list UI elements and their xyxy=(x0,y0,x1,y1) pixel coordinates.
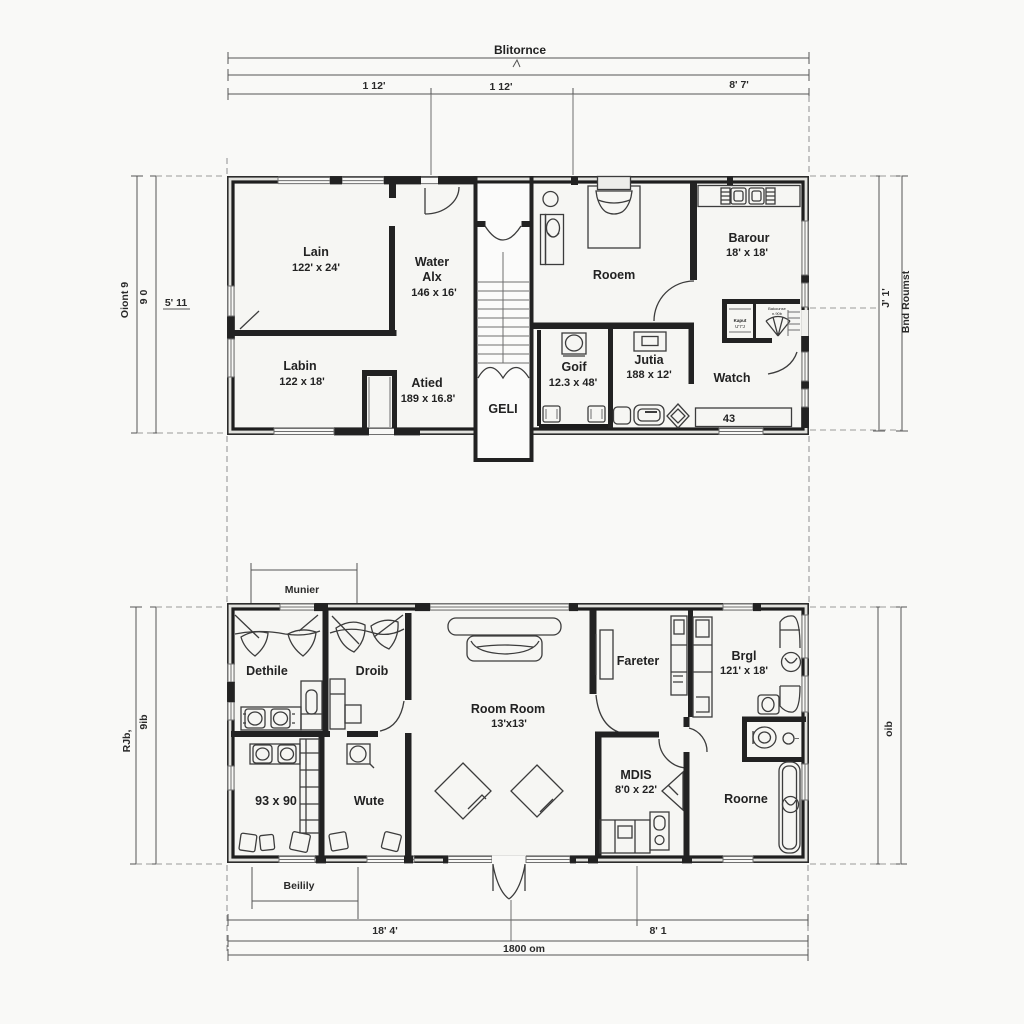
svg-text:Bnd Roumst: Bnd Roumst xyxy=(900,270,912,333)
svg-text:18' 4': 18' 4' xyxy=(372,925,397,937)
svg-text:Kaput: Kaput xyxy=(734,318,747,323)
svg-text:Dethile: Dethile xyxy=(246,664,288,678)
svg-text:121' x 18': 121' x 18' xyxy=(720,665,768,677)
svg-text:Oiont 9: Oiont 9 xyxy=(119,282,131,318)
svg-text:122 x 18': 122 x 18' xyxy=(279,376,325,388)
svg-text:18' x 18': 18' x 18' xyxy=(726,247,768,259)
svg-text:8' 1: 8' 1 xyxy=(649,925,666,937)
svg-text:Room Room: Room Room xyxy=(471,702,545,716)
svg-text:MDIS: MDIS xyxy=(620,768,651,782)
svg-text:oib: oib xyxy=(883,721,895,737)
svg-text:Wute: Wute xyxy=(354,794,384,808)
svg-text:Labin: Labin xyxy=(283,359,316,373)
svg-text:12.3 x 48': 12.3 x 48' xyxy=(549,377,598,389)
svg-text:Blitornce: Blitornce xyxy=(494,43,546,57)
svg-text:5' 11: 5' 11 xyxy=(165,297,188,309)
svg-text:146 x 16': 146 x 16' xyxy=(411,287,457,299)
svg-text:Beilily: Beilily xyxy=(284,880,315,892)
svg-text:1 12': 1 12' xyxy=(490,81,513,93)
svg-text:1 12': 1 12' xyxy=(363,80,386,92)
svg-text:RJb,: RJb, xyxy=(121,730,133,753)
svg-text:Roorne: Roorne xyxy=(724,792,768,806)
svg-text:9 0: 9 0 xyxy=(138,290,150,305)
svg-text:Lain: Lain xyxy=(303,245,329,259)
svg-text:Barour: Barour xyxy=(729,231,770,245)
svg-text:Fareter: Fareter xyxy=(617,654,660,668)
svg-text:43: 43 xyxy=(723,413,735,425)
svg-text:GELI: GELI xyxy=(488,402,517,416)
svg-text:9ib: 9ib xyxy=(138,714,150,729)
svg-text:189 x 16.8': 189 x 16.8' xyxy=(401,393,456,405)
svg-text:93 x 90: 93 x 90 xyxy=(255,794,297,808)
svg-text:Water: Water xyxy=(415,255,449,269)
svg-text:Atied: Atied xyxy=(411,376,442,390)
svg-text:Droib: Droib xyxy=(356,664,389,678)
svg-text:Rooem: Rooem xyxy=(593,268,635,282)
svg-text:Alx: Alx xyxy=(422,270,442,284)
svg-text:188 x 12': 188 x 12' xyxy=(626,369,672,381)
svg-text:U'7'J: U'7'J xyxy=(735,324,745,329)
svg-text:Watch: Watch xyxy=(713,371,750,385)
svg-text:n.90b: n.90b xyxy=(772,311,783,316)
svg-text:J' 1': J' 1' xyxy=(880,288,892,308)
svg-text:122' x 24': 122' x 24' xyxy=(292,262,340,274)
svg-text:Brgl: Brgl xyxy=(732,649,757,663)
svg-text:13'x13': 13'x13' xyxy=(491,718,527,730)
svg-text:Munier: Munier xyxy=(285,584,319,596)
svg-text:1800 om: 1800 om xyxy=(503,943,545,955)
svg-text:8' 7': 8' 7' xyxy=(729,79,749,91)
svg-text:Goif: Goif xyxy=(562,360,588,374)
svg-text:8'0 x 22': 8'0 x 22' xyxy=(615,784,657,796)
svg-text:Jutia: Jutia xyxy=(634,353,664,367)
